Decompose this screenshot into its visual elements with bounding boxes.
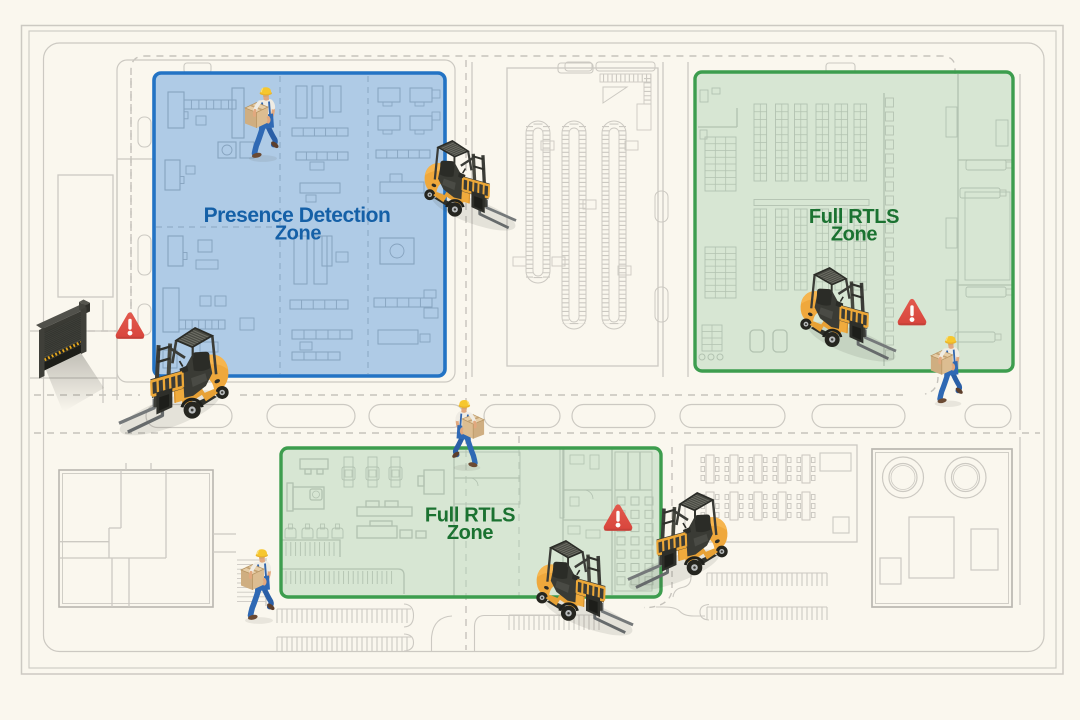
svg-text:Zone: Zone bbox=[447, 522, 494, 544]
svg-text:Zone: Zone bbox=[831, 224, 878, 246]
svg-text:Zone: Zone bbox=[275, 223, 322, 245]
